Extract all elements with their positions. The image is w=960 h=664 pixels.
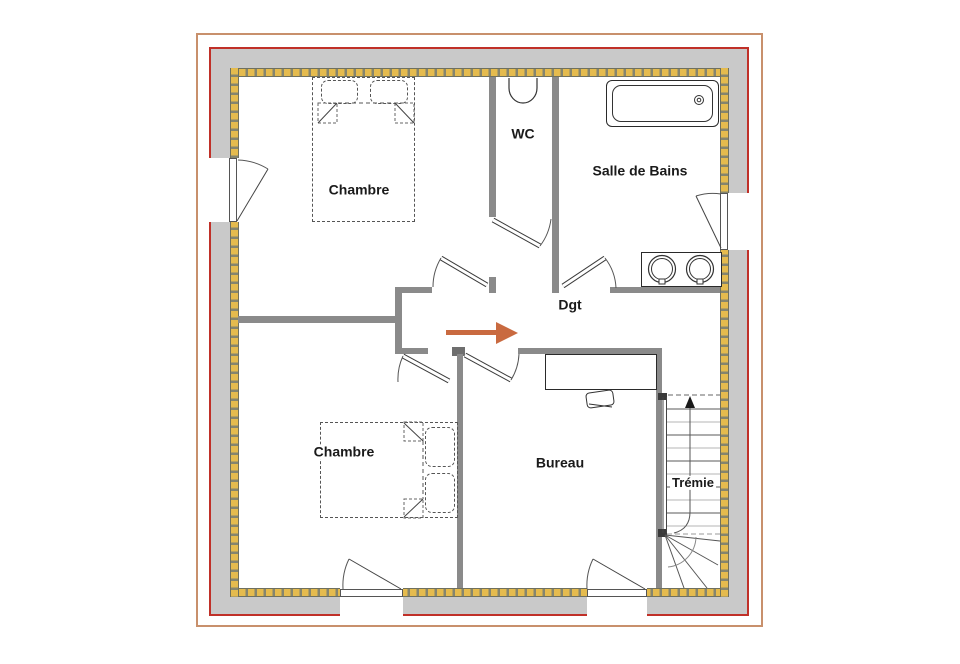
stair-rail-post-top bbox=[658, 393, 667, 400]
window-sash-left bbox=[229, 158, 237, 222]
wall-wc-left-upper bbox=[489, 77, 496, 217]
wall-hall-left-vertical bbox=[395, 287, 402, 354]
exterior-wall-left bbox=[211, 49, 230, 614]
exterior-wall-right bbox=[729, 49, 747, 614]
pillow bbox=[370, 80, 408, 104]
hatch-strip-bottom bbox=[230, 588, 729, 597]
wall-wc-left-lower bbox=[489, 277, 496, 293]
window-sash-bottom-1 bbox=[340, 589, 403, 597]
bathtub-inner bbox=[612, 85, 713, 122]
window-sash-right bbox=[720, 193, 728, 250]
stair-rail-post-winder bbox=[658, 529, 667, 537]
room-label-dgt: Dgt bbox=[556, 297, 583, 312]
wall-wc-right bbox=[552, 77, 559, 293]
wall-chambre-divider bbox=[238, 316, 402, 323]
room-label-bureau: Bureau bbox=[534, 455, 586, 470]
floor-plan-canvas: Chambre WC Salle de Bains Dgt Chambre Bu… bbox=[0, 0, 960, 664]
room-label-salle-de-bains: Salle de Bains bbox=[591, 163, 690, 178]
double-sink-vanity bbox=[641, 252, 722, 287]
wall-hall-bottom-left bbox=[395, 348, 428, 354]
hatch-strip-left bbox=[230, 68, 239, 597]
hatch-strip-right bbox=[720, 68, 729, 597]
room-label-wc: WC bbox=[509, 126, 536, 141]
window-sash-bottom-2 bbox=[587, 589, 647, 597]
room-label-chambre-2: Chambre bbox=[312, 444, 377, 459]
entry-arrow-shaft bbox=[446, 330, 498, 335]
wall-hall-top-right bbox=[610, 287, 720, 293]
hatch-strip-top bbox=[230, 68, 729, 77]
desk bbox=[545, 354, 657, 390]
pillow bbox=[425, 473, 455, 513]
exterior-wall-bottom bbox=[211, 597, 747, 614]
pillow bbox=[425, 427, 455, 467]
entry-arrow-icon bbox=[496, 322, 518, 344]
room-label-tremie: Trémie bbox=[670, 476, 716, 490]
wall-hall-top-left bbox=[395, 287, 432, 293]
exterior-wall-top bbox=[211, 49, 747, 68]
room-label-chambre-1: Chambre bbox=[327, 182, 392, 197]
pillow bbox=[321, 80, 358, 104]
